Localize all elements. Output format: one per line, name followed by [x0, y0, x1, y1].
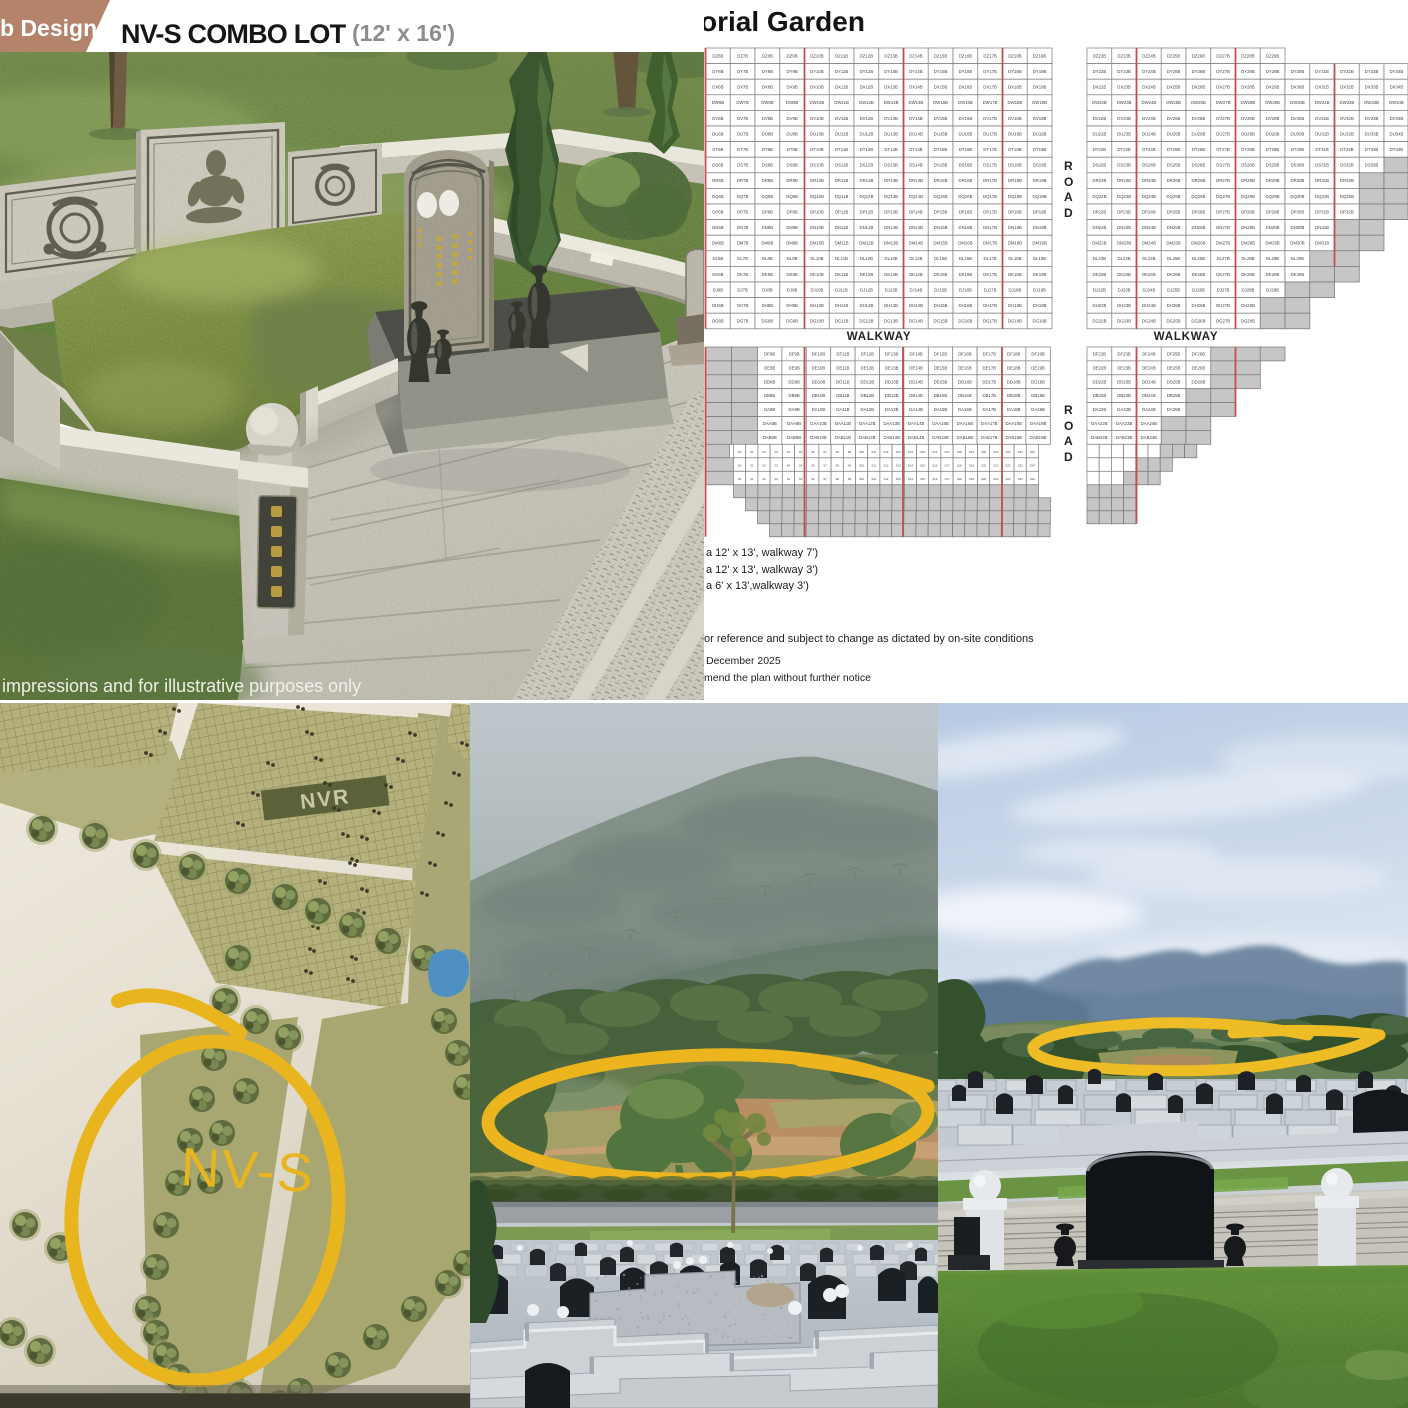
svg-text:DE17B: DE17B — [982, 365, 996, 370]
svg-text:DU25B: DU25B — [1167, 131, 1181, 136]
svg-text:DB10B: DB10B — [812, 393, 826, 398]
svg-text:DE13B: DE13B — [885, 365, 899, 370]
svg-text:S21: S21 — [993, 450, 998, 454]
svg-text:DK15B: DK15B — [934, 272, 948, 277]
svg-text:DW16B: DW16B — [958, 100, 973, 105]
svg-text:DR18B: DR18B — [1008, 178, 1022, 183]
svg-text:DT28B: DT28B — [1241, 147, 1255, 152]
svg-text:DT27B: DT27B — [1216, 147, 1230, 152]
svg-text:DG26B: DG26B — [1191, 319, 1205, 324]
svg-text:DL15B: DL15B — [934, 256, 947, 261]
svg-text:DY22B: DY22B — [1093, 69, 1107, 74]
svg-text:DR13B: DR13B — [884, 178, 898, 183]
svg-text:DX9B: DX9B — [786, 85, 797, 90]
svg-text:DN18B: DN18B — [1008, 225, 1022, 230]
svg-text:DZ11B: DZ11B — [835, 53, 848, 58]
svg-text:DP28B: DP28B — [1241, 209, 1255, 214]
svg-text:DAA22B: DAA22B — [1091, 421, 1108, 426]
svg-text:S12: S12 — [884, 463, 889, 467]
svg-text:DL10B: DL10B — [810, 256, 823, 261]
svg-text:DN10B: DN10B — [810, 225, 824, 230]
svg-text:S17: S17 — [945, 463, 950, 467]
svg-text:DS25B: DS25B — [1167, 163, 1181, 168]
svg-text:DAB10B: DAB10B — [810, 435, 827, 440]
svg-text:DW11B: DW11B — [834, 100, 849, 105]
svg-text:DM19B: DM19B — [1032, 241, 1046, 246]
svg-text:DD14B: DD14B — [909, 379, 923, 384]
svg-text:DL9B: DL9B — [787, 256, 798, 261]
svg-text:S8: S8 — [835, 477, 839, 481]
svg-text:DAB24B: DAB24B — [1141, 435, 1158, 440]
svg-text:mend the plan without further: mend the plan without further notice — [704, 672, 871, 684]
svg-text:DX33B: DX33B — [1365, 85, 1379, 90]
svg-text:DW28B: DW28B — [1240, 100, 1255, 105]
svg-text:DJ10B: DJ10B — [810, 287, 823, 292]
svg-text:DD12B: DD12B — [860, 379, 874, 384]
svg-text:DL16B: DL16B — [959, 256, 972, 261]
svg-text:DG10B: DG10B — [810, 319, 824, 324]
svg-text:DQ23B: DQ23B — [1117, 194, 1131, 199]
svg-text:DP22B: DP22B — [1093, 209, 1107, 214]
svg-text:S18: S18 — [957, 450, 962, 454]
svg-text:DM24B: DM24B — [1142, 241, 1156, 246]
svg-text:DAA18B: DAA18B — [1005, 421, 1022, 426]
svg-text:DY15B: DY15B — [934, 69, 948, 74]
svg-text:DS15B: DS15B — [934, 163, 948, 168]
svg-text:DJ24B: DJ24B — [1142, 287, 1155, 292]
svg-text:DK12B: DK12B — [860, 272, 874, 277]
svg-text:A: A — [1064, 190, 1073, 204]
svg-text:DN17B: DN17B — [983, 225, 997, 230]
svg-text:D: D — [1064, 206, 1073, 220]
svg-text:DG19B: DG19B — [1033, 319, 1047, 324]
svg-text:DV27B: DV27B — [1216, 116, 1230, 121]
svg-text:DW25B: DW25B — [1166, 100, 1181, 105]
svg-text:DX31B: DX31B — [1315, 85, 1329, 90]
svg-text:DB22B: DB22B — [1093, 393, 1107, 398]
svg-text:S5: S5 — [799, 477, 803, 481]
svg-text:DU22B: DU22B — [1092, 131, 1106, 136]
svg-text:DZ23B: DZ23B — [1117, 53, 1131, 58]
svg-text:DR32B: DR32B — [1340, 178, 1354, 183]
svg-text:DK18B: DK18B — [1008, 272, 1022, 277]
svg-text:DAA23B: DAA23B — [1116, 421, 1133, 426]
svg-text:DT14B: DT14B — [909, 147, 923, 152]
svg-text:DX11B: DX11B — [835, 85, 848, 90]
svg-text:DK26B: DK26B — [1192, 272, 1206, 277]
svg-text:DAB18B: DAB18B — [1005, 435, 1022, 440]
svg-text:DAB22B: DAB22B — [1091, 435, 1108, 440]
svg-text:DB8B: DB8B — [764, 393, 775, 398]
svg-text:DV18B: DV18B — [1008, 116, 1022, 121]
svg-text:DAB16B: DAB16B — [957, 435, 974, 440]
svg-text:DR30B: DR30B — [1290, 178, 1304, 183]
svg-text:DJ26B: DJ26B — [1192, 287, 1205, 292]
svg-text:DT24B: DT24B — [1142, 147, 1156, 152]
svg-text:DN26B: DN26B — [1191, 225, 1205, 230]
svg-text:DR27B: DR27B — [1216, 178, 1230, 183]
svg-text:DX26B: DX26B — [1192, 85, 1206, 90]
svg-text:DF10B: DF10B — [812, 352, 826, 357]
svg-text:DJ9B: DJ9B — [787, 287, 798, 292]
svg-text:DV10B: DV10B — [810, 116, 824, 121]
svg-text:S9: S9 — [848, 463, 852, 467]
svg-text:DY34B: DY34B — [1390, 69, 1404, 74]
svg-text:DD16B: DD16B — [958, 379, 972, 384]
svg-text:DE10B: DE10B — [812, 365, 826, 370]
svg-text:DG27B: DG27B — [1216, 319, 1230, 324]
svg-text:DZ25B: DZ25B — [1167, 53, 1181, 58]
svg-text:DU7B: DU7B — [737, 131, 749, 136]
svg-text:DJ6B: DJ6B — [713, 287, 724, 292]
svg-text:DQ29B: DQ29B — [1266, 194, 1280, 199]
svg-text:DAA8B: DAA8B — [763, 421, 777, 426]
svg-text:DL28B: DL28B — [1241, 256, 1254, 261]
svg-text:DK9B: DK9B — [786, 272, 797, 277]
svg-text:DM31B: DM31B — [1315, 241, 1329, 246]
svg-text:DP10B: DP10B — [810, 209, 824, 214]
svg-text:DY30B: DY30B — [1291, 69, 1305, 74]
svg-text:DP14B: DP14B — [909, 209, 923, 214]
svg-text:DW13B: DW13B — [884, 100, 899, 105]
svg-text:DAA9B: DAA9B — [787, 421, 801, 426]
svg-text:DU12B: DU12B — [859, 131, 873, 136]
svg-text:DZ26B: DZ26B — [1192, 53, 1206, 58]
svg-text:DR10B: DR10B — [810, 178, 824, 183]
svg-text:DH23B: DH23B — [1117, 303, 1131, 308]
svg-text:DK14B: DK14B — [909, 272, 923, 277]
svg-text:DJ8B: DJ8B — [762, 287, 773, 292]
svg-text:S21: S21 — [993, 477, 998, 481]
svg-text:DW12B: DW12B — [859, 100, 874, 105]
svg-text:DJ12B: DJ12B — [860, 287, 873, 292]
svg-text:DN25B: DN25B — [1167, 225, 1181, 230]
svg-text:S0: S0 — [738, 450, 742, 454]
svg-text:DQ15B: DQ15B — [934, 194, 948, 199]
svg-text:(12' x 16'): (12' x 16') — [352, 20, 455, 46]
svg-text:DP25B: DP25B — [1167, 209, 1181, 214]
svg-text:DAB14B: DAB14B — [908, 435, 925, 440]
svg-text:DH14B: DH14B — [909, 303, 923, 308]
svg-text:DQ24B: DQ24B — [1142, 194, 1156, 199]
svg-text:DB12B: DB12B — [860, 393, 874, 398]
svg-text:DK30B: DK30B — [1291, 272, 1305, 277]
svg-text:DR12B: DR12B — [859, 178, 873, 183]
svg-text:DR17B: DR17B — [983, 178, 997, 183]
svg-text:DR26B: DR26B — [1191, 178, 1205, 183]
svg-text:DJ29B: DJ29B — [1266, 287, 1279, 292]
svg-text:DN12B: DN12B — [859, 225, 873, 230]
svg-text:DR31B: DR31B — [1315, 178, 1329, 183]
svg-text:DN9B: DN9B — [786, 225, 798, 230]
svg-text:DZ18B: DZ18B — [1008, 53, 1022, 58]
svg-text:DF8B: DF8B — [764, 352, 775, 357]
svg-text:DS7B: DS7B — [737, 163, 748, 168]
svg-text:DY13B: DY13B — [884, 69, 898, 74]
svg-text:DR22B: DR22B — [1092, 178, 1106, 183]
svg-text:DU33B: DU33B — [1365, 131, 1379, 136]
svg-text:DK13B: DK13B — [884, 272, 898, 277]
svg-text:DAA19B: DAA19B — [1030, 421, 1047, 426]
svg-text:DS31B: DS31B — [1315, 163, 1329, 168]
svg-text:DT7B: DT7B — [737, 147, 748, 152]
svg-text:DR19B: DR19B — [1033, 178, 1047, 183]
svg-text:DQ8B: DQ8B — [762, 194, 774, 199]
svg-text:DJ17B: DJ17B — [984, 287, 997, 292]
svg-text:DU6B: DU6B — [712, 131, 724, 136]
svg-text:DT16B: DT16B — [959, 147, 973, 152]
svg-text:DH13B: DH13B — [884, 303, 898, 308]
svg-text:DU27B: DU27B — [1216, 131, 1230, 136]
svg-text:DE11B: DE11B — [836, 365, 849, 370]
svg-text:DAA24B: DAA24B — [1141, 421, 1158, 426]
svg-text:R: R — [1064, 159, 1073, 173]
svg-text:DT31B: DT31B — [1315, 147, 1329, 152]
svg-text:DL11B: DL11B — [835, 256, 848, 261]
svg-text:DA12B: DA12B — [860, 407, 874, 412]
svg-text:DU16B: DU16B — [958, 131, 972, 136]
svg-text:R: R — [1064, 403, 1073, 417]
svg-text:DW17B: DW17B — [983, 100, 998, 105]
svg-text:DR14B: DR14B — [909, 178, 923, 183]
svg-text:DF24B: DF24B — [1142, 352, 1156, 357]
svg-text:DZ10B: DZ10B — [810, 53, 824, 58]
svg-text:DK10B: DK10B — [810, 272, 824, 277]
svg-text:DH10B: DH10B — [810, 303, 824, 308]
svg-text:S17: S17 — [945, 450, 950, 454]
svg-text:DQ26B: DQ26B — [1191, 194, 1205, 199]
svg-text:DL22B: DL22B — [1093, 256, 1106, 261]
svg-text:DT33B: DT33B — [1365, 147, 1379, 152]
svg-text:DE25B: DE25B — [1167, 365, 1181, 370]
svg-text:or reference and subject to ch: or reference and subject to change as di… — [704, 633, 1034, 645]
svg-text:DS26B: DS26B — [1192, 163, 1206, 168]
svg-text:DY16B: DY16B — [959, 69, 973, 74]
svg-text:DB15B: DB15B — [934, 393, 948, 398]
svg-text:S8: S8 — [835, 450, 839, 454]
svg-text:DY26B: DY26B — [1192, 69, 1206, 74]
svg-text:DV8B: DV8B — [762, 116, 773, 121]
svg-text:DF25B: DF25B — [1167, 352, 1181, 357]
svg-text:DX27B: DX27B — [1216, 85, 1230, 90]
svg-text:DB13B: DB13B — [885, 393, 899, 398]
svg-text:DQ25B: DQ25B — [1167, 194, 1181, 199]
svg-text:DK28B: DK28B — [1241, 272, 1255, 277]
svg-text:S23: S23 — [1018, 450, 1023, 454]
svg-text:DL26B: DL26B — [1192, 256, 1205, 261]
svg-text:DT19B: DT19B — [1033, 147, 1047, 152]
svg-text:DAB9B: DAB9B — [787, 435, 801, 440]
svg-text:DX29B: DX29B — [1266, 85, 1280, 90]
svg-text:DM12B: DM12B — [859, 241, 873, 246]
svg-text:DZ28B: DZ28B — [1241, 53, 1255, 58]
svg-text:DQ9B: DQ9B — [786, 194, 798, 199]
svg-text:DY8B: DY8B — [762, 69, 773, 74]
svg-text:DV34B: DV34B — [1390, 116, 1404, 121]
svg-text:DS18B: DS18B — [1008, 163, 1022, 168]
svg-text:DU11B: DU11B — [835, 131, 849, 136]
svg-text:DU13B: DU13B — [884, 131, 898, 136]
svg-text:DU14B: DU14B — [909, 131, 923, 136]
svg-text:DW33B: DW33B — [1364, 100, 1379, 105]
svg-text:DQ14B: DQ14B — [909, 194, 923, 199]
svg-text:DP6B: DP6B — [712, 209, 723, 214]
svg-text:DZ16B: DZ16B — [959, 53, 973, 58]
svg-text:S8: S8 — [835, 463, 839, 467]
svg-text:DG7B: DG7B — [737, 319, 749, 324]
svg-text:DE15B: DE15B — [934, 365, 948, 370]
svg-text:S23: S23 — [1018, 463, 1023, 467]
svg-text:DN30B: DN30B — [1290, 225, 1304, 230]
svg-text:S12: S12 — [884, 477, 889, 481]
svg-text:December 2025: December 2025 — [706, 655, 781, 667]
svg-text:DJ19B: DJ19B — [1033, 287, 1046, 292]
svg-text:S9: S9 — [848, 477, 852, 481]
svg-text:DX12B: DX12B — [860, 85, 874, 90]
svg-text:DX18B: DX18B — [1008, 85, 1022, 90]
svg-text:DV22B: DV22B — [1093, 116, 1107, 121]
svg-text:DG18B: DG18B — [1008, 319, 1022, 324]
svg-text:DX19B: DX19B — [1033, 85, 1047, 90]
svg-text:S24: S24 — [1030, 477, 1035, 481]
svg-text:DR16B: DR16B — [958, 178, 972, 183]
svg-text:DX16B: DX16B — [959, 85, 973, 90]
svg-text:S11: S11 — [871, 463, 876, 467]
svg-text:DH11B: DH11B — [835, 303, 849, 308]
svg-text:DF12B: DF12B — [861, 352, 875, 357]
svg-text:DG6B: DG6B — [712, 319, 724, 324]
svg-text:DB19B: DB19B — [1031, 393, 1045, 398]
svg-text:DT30B: DT30B — [1291, 147, 1305, 152]
svg-text:DT17B: DT17B — [983, 147, 997, 152]
svg-text:DT15B: DT15B — [934, 147, 948, 152]
svg-text:DN14B: DN14B — [909, 225, 923, 230]
svg-text:DG24B: DG24B — [1142, 319, 1156, 324]
svg-text:DV16B: DV16B — [959, 116, 973, 121]
svg-text:DU28B: DU28B — [1241, 131, 1255, 136]
svg-text:DAB12B: DAB12B — [859, 435, 876, 440]
svg-text:DV26B: DV26B — [1192, 116, 1206, 121]
svg-text:DW15B: DW15B — [933, 100, 948, 105]
svg-text:DM28B: DM28B — [1241, 241, 1255, 246]
svg-text:S22: S22 — [1006, 463, 1011, 467]
svg-text:DE24B: DE24B — [1142, 365, 1156, 370]
svg-text:DM25B: DM25B — [1166, 241, 1180, 246]
svg-text:DN11B: DN11B — [835, 225, 849, 230]
svg-text:DD26B: DD26B — [1191, 379, 1205, 384]
svg-text:DT22B: DT22B — [1093, 147, 1107, 152]
svg-text:DH12B: DH12B — [859, 303, 873, 308]
svg-text:DV6B: DV6B — [712, 116, 723, 121]
svg-text:DW26B: DW26B — [1191, 100, 1206, 105]
svg-text:DAA16B: DAA16B — [957, 421, 974, 426]
svg-text:S6: S6 — [811, 477, 815, 481]
svg-text:DK6B: DK6B — [712, 272, 723, 277]
svg-text:DN24B: DN24B — [1142, 225, 1156, 230]
svg-text:DW18B: DW18B — [1007, 100, 1022, 105]
svg-text:S4: S4 — [787, 463, 791, 467]
svg-text:DY25B: DY25B — [1167, 69, 1181, 74]
svg-text:S19: S19 — [969, 477, 974, 481]
svg-text:DAA14B: DAA14B — [908, 421, 925, 426]
svg-text:DZ13B: DZ13B — [884, 53, 898, 58]
svg-text:DD13B: DD13B — [885, 379, 899, 384]
svg-text:DD19B: DD19B — [1031, 379, 1045, 384]
svg-text:DY29B: DY29B — [1266, 69, 1280, 74]
svg-text:DA10B: DA10B — [812, 407, 826, 412]
svg-text:DQ16B: DQ16B — [958, 194, 972, 199]
svg-text:DY23B: DY23B — [1117, 69, 1131, 74]
svg-text:DD10B: DD10B — [812, 379, 826, 384]
svg-text:DA14B: DA14B — [909, 407, 923, 412]
svg-text:DH15B: DH15B — [934, 303, 948, 308]
svg-text:DH17B: DH17B — [983, 303, 997, 308]
svg-text:DV33B: DV33B — [1365, 116, 1379, 121]
svg-text:DR6B: DR6B — [712, 178, 724, 183]
svg-text:DW22B: DW22B — [1092, 100, 1107, 105]
svg-text:DB25B: DB25B — [1167, 393, 1181, 398]
svg-text:DD23B: DD23B — [1117, 379, 1131, 384]
svg-text:DT11B: DT11B — [835, 147, 848, 152]
svg-text:DL14B: DL14B — [909, 256, 922, 261]
svg-text:DS9B: DS9B — [786, 163, 797, 168]
svg-text:DW8B: DW8B — [761, 100, 774, 105]
svg-text:DP7B: DP7B — [737, 209, 748, 214]
svg-text:DE23B: DE23B — [1117, 365, 1131, 370]
svg-text:DQ30B: DQ30B — [1290, 194, 1304, 199]
svg-text:DJ18B: DJ18B — [1008, 287, 1021, 292]
svg-text:S9: S9 — [848, 450, 852, 454]
svg-text:DA9B: DA9B — [788, 407, 799, 412]
svg-text:DAA12B: DAA12B — [859, 421, 876, 426]
svg-text:DS19B: DS19B — [1033, 163, 1047, 168]
svg-text:S4: S4 — [787, 477, 791, 481]
svg-text:DL29B: DL29B — [1266, 256, 1279, 261]
svg-text:DH22B: DH22B — [1092, 303, 1106, 308]
svg-text:DS27B: DS27B — [1216, 163, 1230, 168]
svg-text:DD8B: DD8B — [764, 379, 776, 384]
svg-text:DB11B: DB11B — [836, 393, 849, 398]
svg-text:S2: S2 — [762, 450, 766, 454]
svg-text:DH8B: DH8B — [762, 303, 774, 308]
svg-text:DE14B: DE14B — [909, 365, 923, 370]
svg-text:DL17B: DL17B — [984, 256, 997, 261]
svg-text:DS22B: DS22B — [1093, 163, 1107, 168]
svg-text:DL27B: DL27B — [1217, 256, 1230, 261]
svg-text:DAA13B: DAA13B — [883, 421, 900, 426]
svg-text:DL8B: DL8B — [762, 256, 773, 261]
svg-text:DM22B: DM22B — [1092, 241, 1106, 246]
svg-text:DK19B: DK19B — [1033, 272, 1047, 277]
svg-text:S24: S24 — [1030, 450, 1035, 454]
svg-text:O: O — [1064, 419, 1073, 433]
svg-text:DAA10B: DAA10B — [810, 421, 827, 426]
svg-text:DK23B: DK23B — [1117, 272, 1131, 277]
svg-text:DN31B: DN31B — [1315, 225, 1329, 230]
svg-text:DU29B: DU29B — [1266, 131, 1280, 136]
svg-text:DP12B: DP12B — [860, 209, 874, 214]
svg-text:DQ31B: DQ31B — [1315, 194, 1329, 199]
svg-text:DK7B: DK7B — [737, 272, 748, 277]
svg-text:DM29B: DM29B — [1265, 241, 1279, 246]
svg-text:DP27B: DP27B — [1216, 209, 1230, 214]
svg-text:S24: S24 — [1030, 463, 1035, 467]
svg-text:DF13B: DF13B — [885, 352, 899, 357]
svg-text:DT12B: DT12B — [860, 147, 874, 152]
svg-text:DN13B: DN13B — [884, 225, 898, 230]
svg-text:DT13B: DT13B — [884, 147, 898, 152]
svg-text:DY32B: DY32B — [1340, 69, 1354, 74]
